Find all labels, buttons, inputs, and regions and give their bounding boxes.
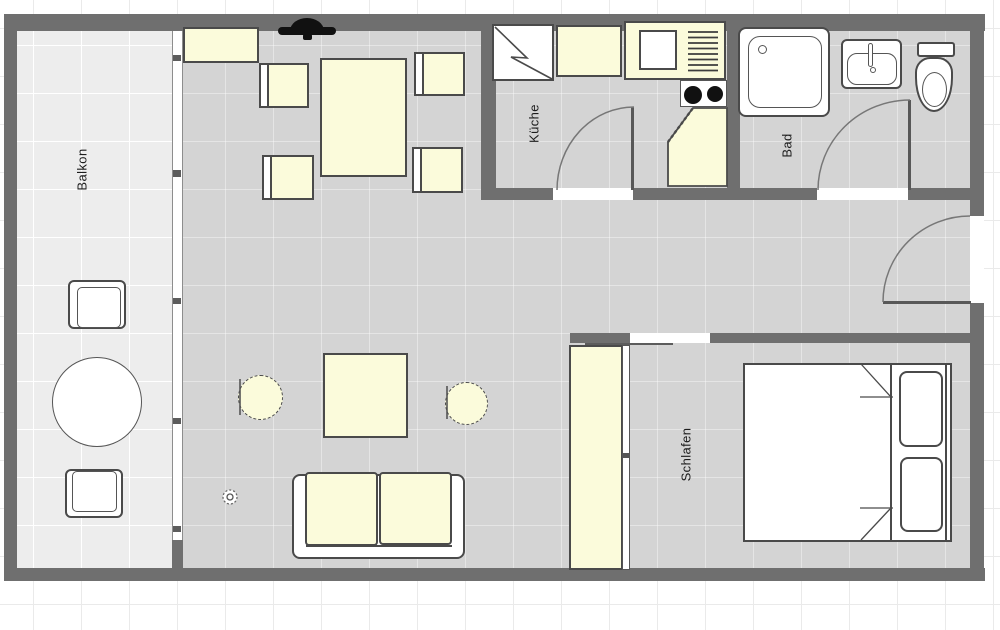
wall-bedroom-north-b — [710, 333, 970, 343]
kitchen-door — [631, 107, 634, 190]
wall-bath-south-a — [740, 188, 817, 200]
toilet-tank — [917, 42, 955, 57]
pillow-top — [899, 371, 943, 447]
coffee-table — [323, 353, 408, 438]
bed-duvet-edge — [890, 365, 892, 540]
wardrobe — [569, 345, 623, 570]
balcony-chair-top-seat — [77, 287, 121, 328]
balcony-window — [172, 31, 183, 540]
room-label-balkon: Balkon — [75, 135, 90, 205]
sofa-front-edge — [306, 545, 452, 547]
sofa-cushion-right — [379, 472, 452, 545]
dining-chair-top-right — [422, 52, 465, 96]
faucet-drain — [870, 67, 876, 73]
cooktop — [680, 80, 727, 107]
kitchen-door-opening — [553, 188, 633, 200]
faucet — [868, 43, 873, 67]
balcony-chair-bottom-seat — [72, 471, 117, 512]
entry-door-opening — [970, 216, 984, 303]
bathroom-door-opening — [817, 188, 908, 200]
window-mullion — [173, 55, 181, 61]
lounge-chair-right — [445, 382, 488, 425]
wall-bath-south-b — [908, 188, 971, 200]
shower-drain — [758, 45, 767, 54]
window-mullion — [173, 418, 181, 424]
wall-window-stub — [172, 540, 183, 568]
bathroom-door — [908, 100, 911, 190]
refrigerator — [492, 24, 554, 81]
dining-chair-top-left — [267, 63, 309, 108]
balcony-round-table — [52, 357, 142, 447]
wall-kitchen-south-a — [481, 188, 553, 200]
room-label-kueche: Küche — [527, 96, 542, 152]
bed-headboard — [945, 365, 947, 540]
wall-bedroom-north-a — [570, 333, 630, 343]
room-label-schlafen: Schlafen — [679, 420, 694, 490]
window-mullion — [173, 298, 181, 304]
toilet-bowl — [922, 72, 947, 107]
wardrobe-handle — [623, 453, 630, 458]
entry-door — [883, 301, 971, 304]
window-mullion — [173, 526, 181, 532]
kitchen-counter — [556, 25, 622, 77]
wall-left — [4, 14, 17, 581]
dining-chair-bottom-left — [270, 155, 314, 200]
wall-right-upper — [970, 14, 984, 216]
wall-right-lower — [970, 303, 984, 581]
sideboard — [183, 27, 259, 63]
room-label-bad: Bad — [780, 126, 795, 166]
sofa-cushion-left — [305, 472, 378, 546]
dining-chair-bottom-right — [420, 147, 463, 193]
bedroom-door-opening — [630, 333, 710, 343]
floor-plan: Balkon Küche Bad Schlafen — [0, 0, 1000, 630]
dining-table — [320, 58, 407, 177]
pillow-bottom — [900, 457, 943, 532]
kitchen-sink — [639, 30, 677, 70]
lounge-chair-left — [238, 375, 283, 420]
wall-bottom — [4, 568, 985, 581]
wall-kitchen-south-b — [633, 188, 740, 200]
window-mullion — [173, 170, 181, 177]
